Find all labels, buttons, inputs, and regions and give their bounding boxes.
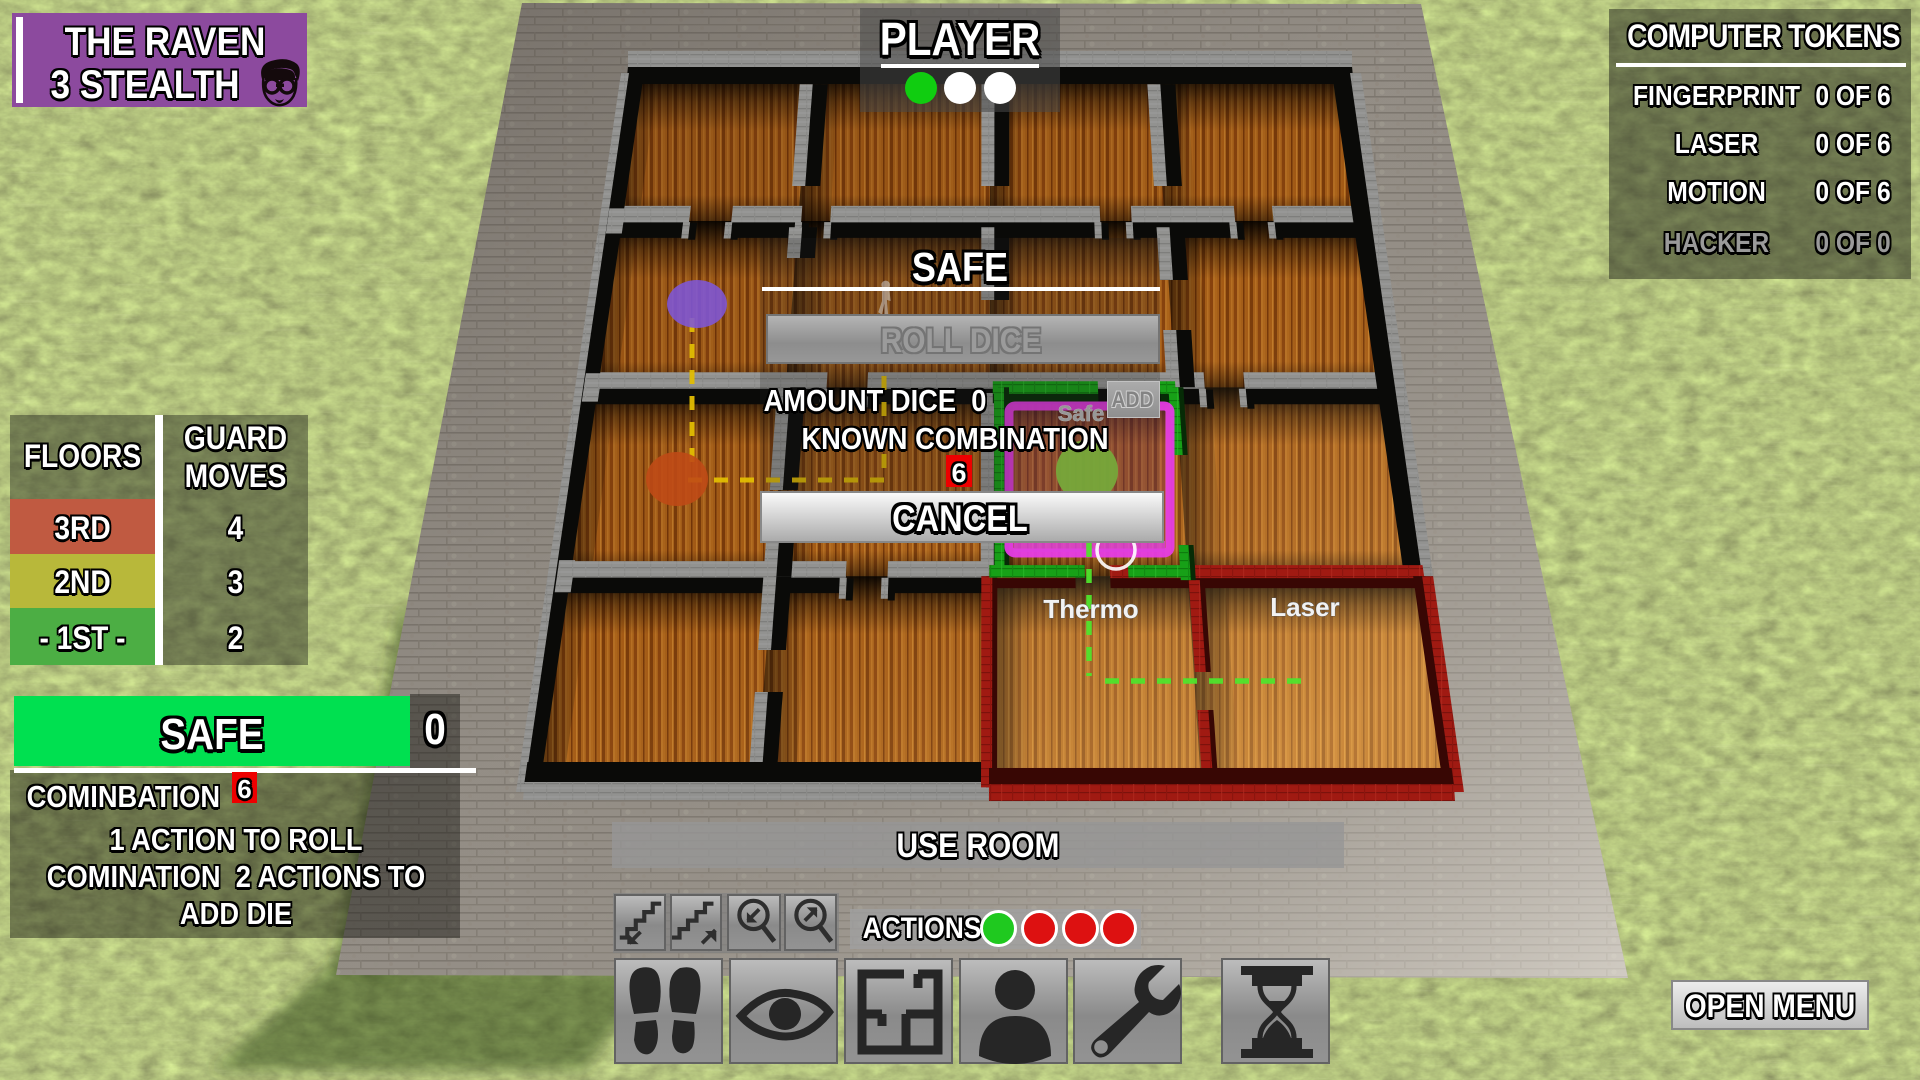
svg-text:Thermo: Thermo bbox=[1043, 594, 1138, 624]
svg-text:Laser: Laser bbox=[1270, 592, 1339, 622]
